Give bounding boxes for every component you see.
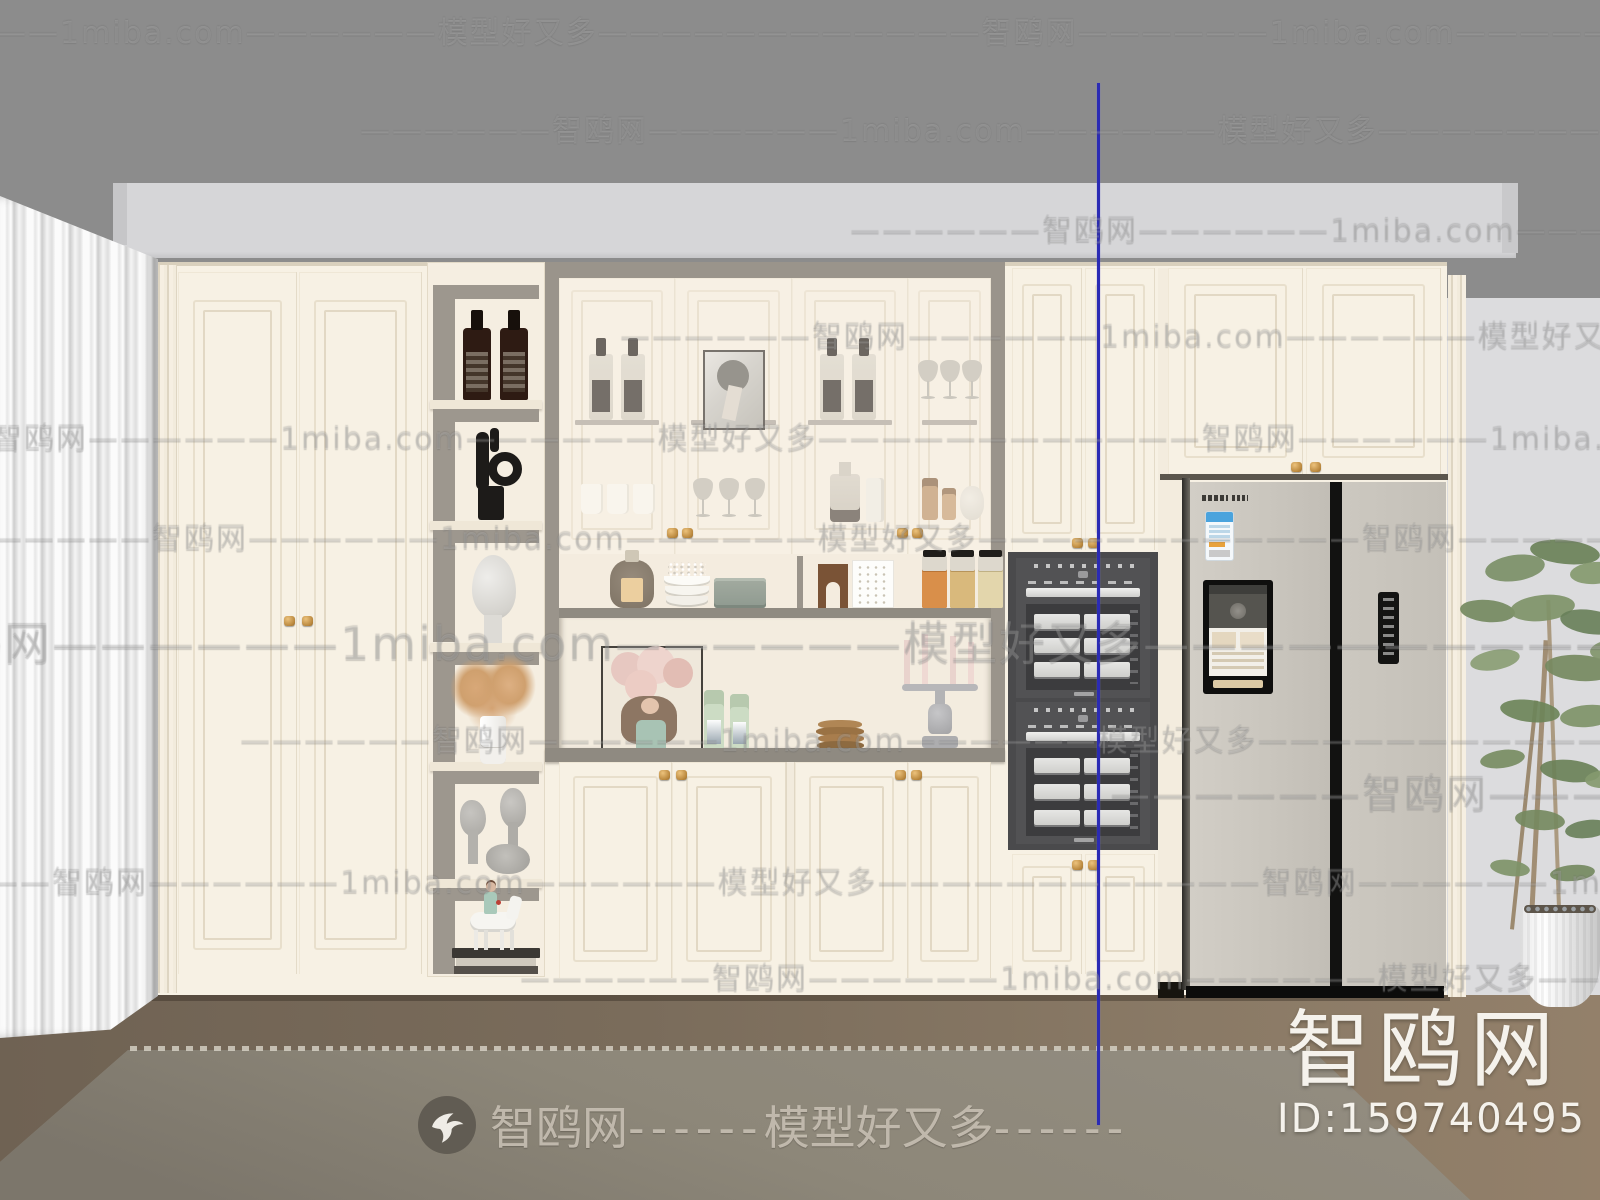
candelabra-figure bbox=[928, 704, 952, 734]
shelf-cell-back bbox=[433, 530, 455, 642]
plant-vase bbox=[480, 716, 506, 764]
menu-card bbox=[1212, 632, 1236, 648]
bottle-label bbox=[733, 722, 746, 744]
ceiling-valance bbox=[120, 183, 1516, 258]
shelf-board bbox=[430, 521, 542, 530]
baking-tray bbox=[1084, 810, 1130, 825]
bust-neck bbox=[484, 615, 502, 643]
door-molding bbox=[193, 300, 282, 950]
oven-column-upper-door-1 bbox=[1012, 268, 1082, 550]
baking-tray bbox=[1034, 758, 1080, 773]
door-knob bbox=[897, 528, 908, 538]
oven-control-buttons bbox=[1034, 564, 1134, 568]
wall-oven-upper bbox=[1016, 558, 1150, 698]
energy-label-arrow bbox=[1209, 542, 1225, 547]
oven-handle bbox=[1026, 732, 1140, 741]
door-molding bbox=[1184, 284, 1287, 458]
bowl bbox=[666, 596, 708, 607]
glass-pane bbox=[792, 278, 908, 554]
shelf-band bbox=[559, 608, 991, 618]
fridge-control-panel bbox=[1378, 592, 1399, 664]
bottle-label bbox=[503, 352, 525, 392]
shelf-board bbox=[430, 643, 542, 652]
base-door-4 bbox=[908, 762, 991, 978]
door-knob bbox=[302, 616, 313, 626]
glass-door-1 bbox=[559, 278, 675, 554]
candelabra bbox=[902, 634, 978, 756]
candle bbox=[950, 636, 956, 684]
energy-label-bars bbox=[1209, 525, 1230, 541]
shelf-board bbox=[430, 400, 542, 409]
door-knob bbox=[1310, 462, 1321, 472]
bottom-watermark-slogan: 模型好又多 bbox=[764, 1101, 994, 1155]
bottle-cap bbox=[471, 310, 483, 330]
valance-right-cap bbox=[1502, 183, 1518, 253]
glass-pane bbox=[908, 278, 991, 554]
menu-card bbox=[1240, 632, 1264, 648]
interior-render-scene: ——————智鸥网——————1miba.com——————模型好又多—————… bbox=[0, 0, 1600, 1200]
base-door-2 bbox=[672, 762, 786, 978]
above-fridge-door-2 bbox=[1306, 268, 1441, 474]
door-knob bbox=[682, 528, 693, 538]
energy-label bbox=[1206, 512, 1233, 560]
jar-lid bbox=[951, 550, 974, 557]
foliage bbox=[1479, 747, 1526, 771]
oven-brand-mark bbox=[1074, 692, 1094, 696]
pantry-jar bbox=[950, 556, 975, 608]
bottom-watermark-dashes: ------ bbox=[994, 1101, 1130, 1155]
oven-column-lower-door-1 bbox=[1012, 854, 1082, 974]
screen-menu bbox=[1209, 628, 1267, 676]
screen-photo bbox=[1209, 594, 1267, 628]
baking-tray bbox=[1084, 758, 1130, 773]
unicorn-figurine bbox=[452, 886, 542, 976]
fridge-touchscreen bbox=[1203, 580, 1273, 694]
pantry-jar bbox=[922, 556, 947, 608]
potted-tree bbox=[1440, 520, 1600, 1020]
shelf-cell-back bbox=[433, 771, 455, 879]
vertical-guide-line bbox=[1097, 83, 1100, 1125]
balloon bbox=[663, 658, 693, 688]
door-knob bbox=[1072, 860, 1083, 870]
oven-control-strip bbox=[1028, 581, 1138, 584]
countertop bbox=[545, 748, 1005, 762]
dried-plant bbox=[450, 658, 536, 768]
baking-tray bbox=[1034, 638, 1080, 653]
bottom-watermark-site: 智鸥网 bbox=[490, 1101, 628, 1155]
oven-column-upper-door-2 bbox=[1085, 268, 1155, 550]
glass-pane bbox=[559, 278, 675, 554]
perfume-cap bbox=[625, 550, 639, 562]
hand-ring bbox=[488, 452, 522, 486]
foliage bbox=[1459, 598, 1516, 625]
door-knob bbox=[667, 528, 678, 538]
green-bottle bbox=[704, 690, 724, 752]
door-molding bbox=[314, 300, 407, 950]
rider-flower bbox=[496, 900, 501, 905]
door-molding bbox=[1022, 284, 1072, 534]
balloon-girl-painting bbox=[601, 646, 703, 756]
bottle-label bbox=[707, 720, 721, 744]
candle bbox=[904, 640, 910, 684]
baking-tray bbox=[1084, 614, 1130, 629]
plate-stack bbox=[714, 578, 766, 608]
oven-window bbox=[1026, 748, 1140, 836]
glass-pane bbox=[675, 278, 792, 554]
base-door-3 bbox=[795, 762, 908, 978]
candle bbox=[968, 642, 974, 684]
sculpture-piece bbox=[486, 844, 530, 874]
floral-card bbox=[852, 560, 894, 608]
oven-brand-mark bbox=[1074, 838, 1094, 842]
door-molding bbox=[1022, 866, 1072, 962]
foliage bbox=[1559, 703, 1600, 730]
whisky-bottle bbox=[463, 328, 491, 400]
jar-lid bbox=[923, 550, 946, 557]
screen-header bbox=[1209, 585, 1267, 594]
door-knob bbox=[1072, 538, 1083, 548]
valance-left-cap bbox=[113, 183, 127, 245]
baking-tray bbox=[1084, 662, 1130, 677]
hand-finger bbox=[476, 432, 489, 490]
candle bbox=[922, 634, 928, 684]
door-knob bbox=[1291, 462, 1302, 472]
oven-rack-rail bbox=[1130, 754, 1138, 830]
wardrobe-door-left bbox=[178, 272, 297, 974]
wardrobe-door-right bbox=[299, 272, 422, 974]
glass-door-2 bbox=[675, 278, 792, 554]
door-molding bbox=[1095, 866, 1145, 962]
rug-fringe bbox=[130, 1046, 1310, 1051]
door-knob bbox=[912, 528, 923, 538]
horse-leg bbox=[474, 930, 478, 950]
fridge-door-divider bbox=[1330, 482, 1342, 988]
tree-trunk bbox=[1528, 640, 1548, 930]
base-door-1 bbox=[559, 762, 672, 978]
baking-tray bbox=[1034, 784, 1080, 799]
above-fridge-door-1 bbox=[1168, 268, 1303, 474]
oven-emblem bbox=[1078, 715, 1088, 722]
baking-tray bbox=[1034, 662, 1080, 677]
fridge-base bbox=[1186, 986, 1444, 998]
whisky-bottle bbox=[500, 328, 528, 400]
hand-finger bbox=[490, 428, 499, 452]
shelf-divider bbox=[797, 556, 803, 608]
green-bottle bbox=[730, 694, 749, 752]
corner-branding: 智鸥网 ID:159740495 bbox=[1277, 1008, 1586, 1142]
door-knob bbox=[284, 616, 295, 626]
arch-cutout bbox=[826, 582, 840, 608]
fridge-brand-mark bbox=[1232, 495, 1248, 501]
energy-label-header bbox=[1206, 512, 1233, 522]
candelabra-base bbox=[922, 736, 958, 748]
bottom-watermark-dashes: ------ bbox=[628, 1101, 764, 1155]
left-pilaster bbox=[155, 265, 177, 993]
door-knob bbox=[911, 770, 922, 780]
wall-oven-lower bbox=[1016, 702, 1150, 844]
fridge-filler-toekick bbox=[1158, 982, 1184, 998]
base-stile bbox=[786, 762, 795, 978]
door-molding bbox=[686, 776, 772, 962]
oven-rack-rail bbox=[1130, 610, 1138, 684]
pot-soil bbox=[1524, 905, 1596, 913]
girl-face bbox=[641, 698, 659, 714]
glass-door-3 bbox=[792, 278, 908, 554]
double-oven-block bbox=[1008, 552, 1158, 850]
door-knob bbox=[659, 770, 670, 780]
door-molding bbox=[920, 776, 979, 962]
book-stack bbox=[454, 966, 538, 974]
girl-dress bbox=[636, 720, 666, 750]
horse-leg bbox=[484, 930, 488, 950]
bottom-watermark: 智鸥网------模型好又多------ bbox=[418, 1092, 1129, 1158]
corner-site-name: 智鸥网 bbox=[1277, 1008, 1562, 1092]
brown-arch-decor bbox=[818, 564, 848, 608]
horse-neck bbox=[505, 895, 522, 921]
book-stack bbox=[456, 958, 536, 966]
foliage bbox=[1489, 857, 1531, 878]
rider-head bbox=[486, 882, 496, 892]
oven-emblem bbox=[1078, 571, 1088, 578]
fridge-brand-mark bbox=[1202, 495, 1228, 501]
fridge-right-door bbox=[1342, 482, 1446, 988]
jar-lid bbox=[979, 550, 1002, 557]
door-knob bbox=[676, 770, 687, 780]
foliage bbox=[1564, 817, 1600, 840]
perfume-bottle bbox=[610, 560, 654, 608]
panel-glyphs bbox=[1383, 598, 1394, 658]
corner-model-id: ID:159740495 bbox=[1277, 1096, 1586, 1142]
door-knob bbox=[895, 770, 906, 780]
foliage bbox=[1469, 646, 1522, 674]
oven-handle bbox=[1026, 588, 1140, 597]
bowl-stack bbox=[664, 566, 710, 608]
baking-tray bbox=[1084, 638, 1130, 653]
shelf-cell-back bbox=[433, 285, 455, 403]
refrigerator bbox=[1182, 478, 1446, 1000]
floral-pattern bbox=[856, 564, 890, 604]
glass-door-4 bbox=[908, 278, 991, 554]
swallow-bird-icon bbox=[418, 1096, 476, 1154]
curtain bbox=[0, 196, 158, 1038]
door-molding bbox=[809, 776, 894, 962]
head-bust-sculpture bbox=[468, 555, 520, 643]
oven-window bbox=[1026, 604, 1140, 690]
hand-wrist bbox=[478, 486, 504, 520]
bottle-cap bbox=[508, 310, 520, 330]
ok-hand-sculpture bbox=[468, 428, 524, 520]
sculpture-piece bbox=[468, 830, 478, 864]
stone-sculptures bbox=[458, 782, 538, 878]
fridge-left-gap bbox=[1182, 478, 1190, 990]
shelf-cell-back bbox=[433, 409, 455, 524]
menu-lines bbox=[1212, 652, 1264, 670]
plant-pot bbox=[1520, 905, 1600, 1007]
book-stack bbox=[452, 948, 540, 958]
perfume-label bbox=[621, 578, 643, 602]
baking-tray bbox=[1034, 614, 1080, 629]
oven-control-buttons bbox=[1034, 708, 1134, 712]
screen-photo-circle bbox=[1230, 603, 1246, 619]
oven-column-lower-door-2 bbox=[1085, 854, 1155, 974]
pantry-jar bbox=[978, 556, 1003, 608]
energy-label-footer bbox=[1209, 550, 1230, 557]
baking-tray bbox=[1034, 810, 1080, 825]
baking-tray bbox=[1084, 784, 1130, 799]
screen-button-bar bbox=[1213, 680, 1263, 688]
horse-leg bbox=[510, 930, 514, 950]
door-molding bbox=[1095, 284, 1145, 534]
bottle-label bbox=[466, 352, 488, 392]
rider-girl bbox=[484, 892, 497, 914]
oven-control-strip bbox=[1028, 725, 1138, 728]
horse-leg bbox=[500, 930, 504, 950]
bust-head bbox=[472, 555, 516, 619]
door-molding bbox=[573, 776, 658, 962]
door-molding bbox=[1322, 284, 1425, 458]
